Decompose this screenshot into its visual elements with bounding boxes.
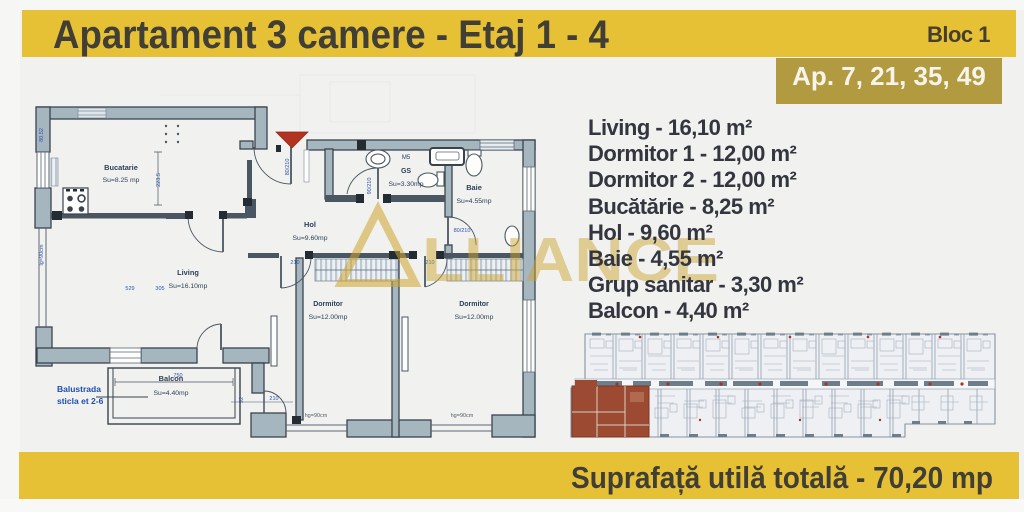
- svg-text:Balustrada: Balustrada: [57, 384, 101, 394]
- svg-text:223.5: 223.5: [156, 173, 162, 187]
- svg-text:GS: GS: [401, 168, 411, 175]
- svg-text:hg=90cm: hg=90cm: [305, 413, 328, 419]
- svg-text:M5: M5: [402, 155, 411, 161]
- svg-text:Su=12.00mp: Su=12.00mp: [455, 314, 494, 321]
- svg-text:Su=4.40mp: Su=4.40mp: [154, 390, 189, 397]
- svg-text:Su=8.25 mp: Su=8.25 mp: [103, 177, 140, 184]
- svg-text:80/210: 80/210: [285, 159, 291, 176]
- svg-text:lg=90cm: lg=90cm: [39, 244, 45, 265]
- svg-text:750: 750: [173, 373, 182, 379]
- svg-text:Bucatarie: Bucatarie: [104, 163, 138, 172]
- svg-text:529: 529: [125, 286, 134, 292]
- svg-text:92: 92: [239, 397, 245, 403]
- svg-text:Su=16.10mp: Su=16.10mp: [169, 283, 208, 290]
- svg-text:Su=12.00mp: Su=12.00mp: [309, 314, 348, 321]
- svg-text:210: 210: [269, 396, 278, 402]
- svg-text:Living: Living: [177, 268, 199, 277]
- svg-text:sticla et 2-6: sticla et 2-6: [57, 396, 104, 406]
- svg-text:305: 305: [155, 286, 164, 292]
- svg-text:210: 210: [290, 260, 299, 266]
- svg-text:80.52: 80.52: [39, 128, 45, 142]
- svg-text:hg=90cm: hg=90cm: [451, 413, 474, 419]
